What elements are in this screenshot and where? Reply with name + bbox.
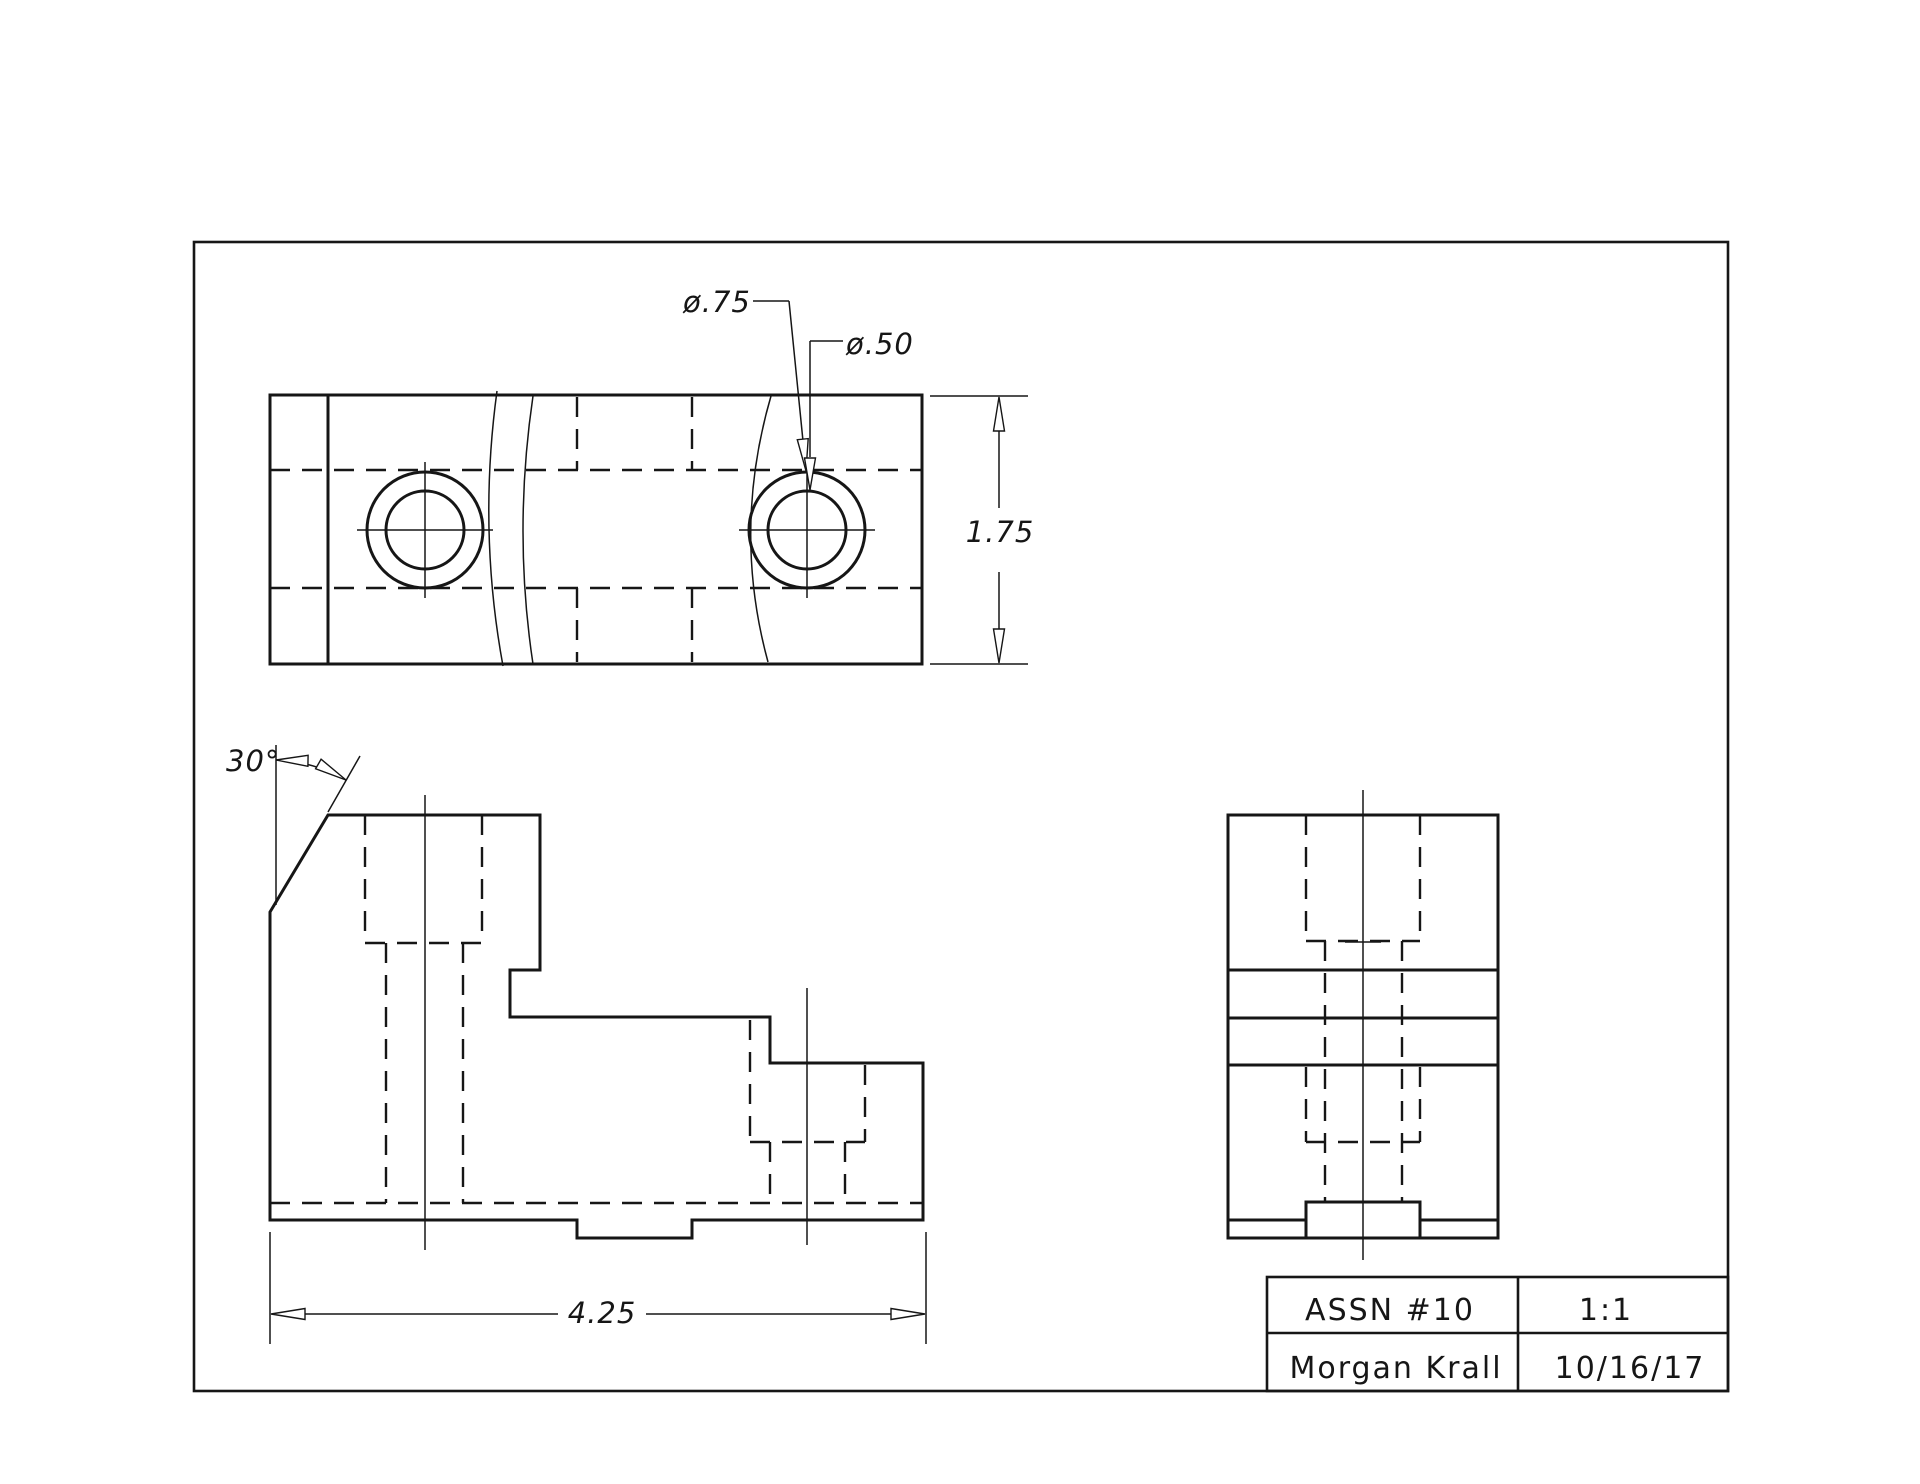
center-line: [357, 462, 493, 598]
arrowhead-up-icon: [994, 397, 1005, 431]
arrowhead-down-icon: [994, 629, 1005, 663]
title-block: ASSN #10 1:1 Morgan Krall 10/16/17: [1267, 1277, 1728, 1391]
drawing-scale: 1:1: [1579, 1293, 1633, 1328]
center-line: [739, 462, 875, 598]
arrowhead-down-icon: [805, 458, 816, 490]
side-view: [1228, 790, 1498, 1260]
leader-hole: ø.50: [805, 327, 914, 490]
arrowhead-left-icon: [271, 1309, 305, 1320]
drawing-date: 10/16/17: [1555, 1351, 1706, 1386]
break-line: [489, 391, 503, 666]
dimension-arc: [276, 760, 346, 780]
cad-drawing: 1.75 4.25 30° ø.75 ø.50 ASSN #10 1:1 Mor…: [0, 0, 1920, 1484]
arrowhead-left-icon: [276, 755, 308, 766]
leader-line: [810, 341, 843, 457]
dim-width: 4.25: [270, 1232, 926, 1344]
drawing-sheet: 1.75 4.25 30° ø.75 ø.50 ASSN #10 1:1 Mor…: [0, 0, 1920, 1484]
extension-line: [328, 756, 360, 812]
arrowhead-right-icon: [316, 759, 346, 780]
leader-counterbore: ø.75: [682, 285, 808, 471]
assignment-title: ASSN #10: [1305, 1293, 1475, 1328]
top-view: [270, 391, 922, 666]
dim-width-label: 4.25: [568, 1296, 637, 1330]
dim-height: 1.75: [930, 396, 1034, 664]
dim-angle-label: 30°: [226, 744, 280, 778]
front-view: [270, 795, 923, 1250]
author-name: Morgan Krall: [1289, 1351, 1502, 1386]
front-view-outline: [270, 815, 923, 1238]
break-line: [523, 396, 533, 664]
hole-diameter-label: ø.50: [845, 327, 914, 361]
dim-angle: 30°: [226, 744, 360, 905]
leader-line: [753, 301, 803, 441]
arrowhead-right-icon: [891, 1309, 925, 1320]
counterbore-diameter-label: ø.75: [682, 285, 751, 319]
dim-height-label: 1.75: [966, 515, 1035, 549]
